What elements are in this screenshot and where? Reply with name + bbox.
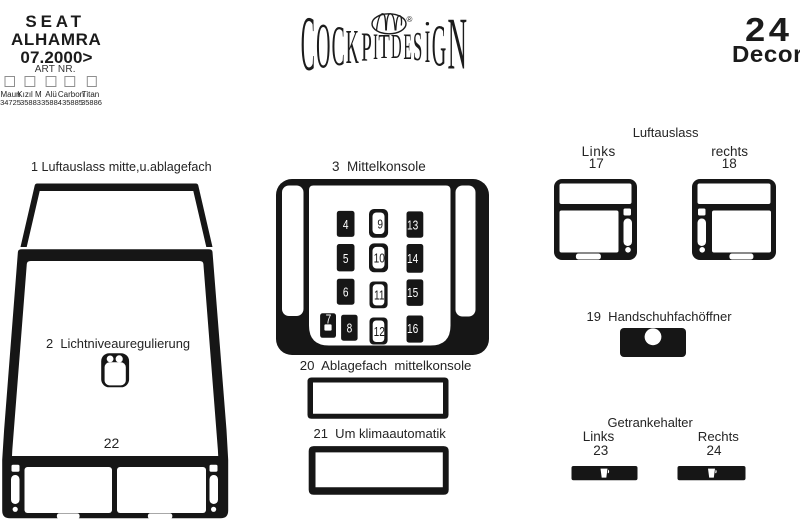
svg-text:15: 15 <box>407 286 418 300</box>
svg-text:®: ® <box>407 15 413 24</box>
svg-text:6: 6 <box>343 285 349 299</box>
svg-text:G: G <box>432 12 447 79</box>
svg-text:9: 9 <box>377 217 383 231</box>
svg-text:E: E <box>404 27 412 68</box>
svg-text:K: K <box>346 21 359 74</box>
svg-text:5: 5 <box>343 252 349 266</box>
svg-text:14: 14 <box>407 252 419 266</box>
svg-text:P: P <box>361 23 372 69</box>
svg-text:11: 11 <box>374 288 385 302</box>
svg-text:13: 13 <box>407 218 418 232</box>
svg-text:I: I <box>373 27 378 68</box>
svg-text:I: I <box>425 21 430 73</box>
svg-text:8: 8 <box>347 322 353 336</box>
svg-text:4: 4 <box>343 218 349 232</box>
svg-text:7: 7 <box>326 312 332 326</box>
svg-text:C: C <box>332 15 345 78</box>
svg-text:16: 16 <box>407 322 418 336</box>
svg-text:C: C <box>301 1 315 87</box>
svg-text:10: 10 <box>374 251 386 265</box>
svg-text:12: 12 <box>374 325 385 339</box>
svg-text:S: S <box>413 23 422 69</box>
svg-text:O: O <box>316 11 330 83</box>
svg-text:N: N <box>448 3 468 85</box>
